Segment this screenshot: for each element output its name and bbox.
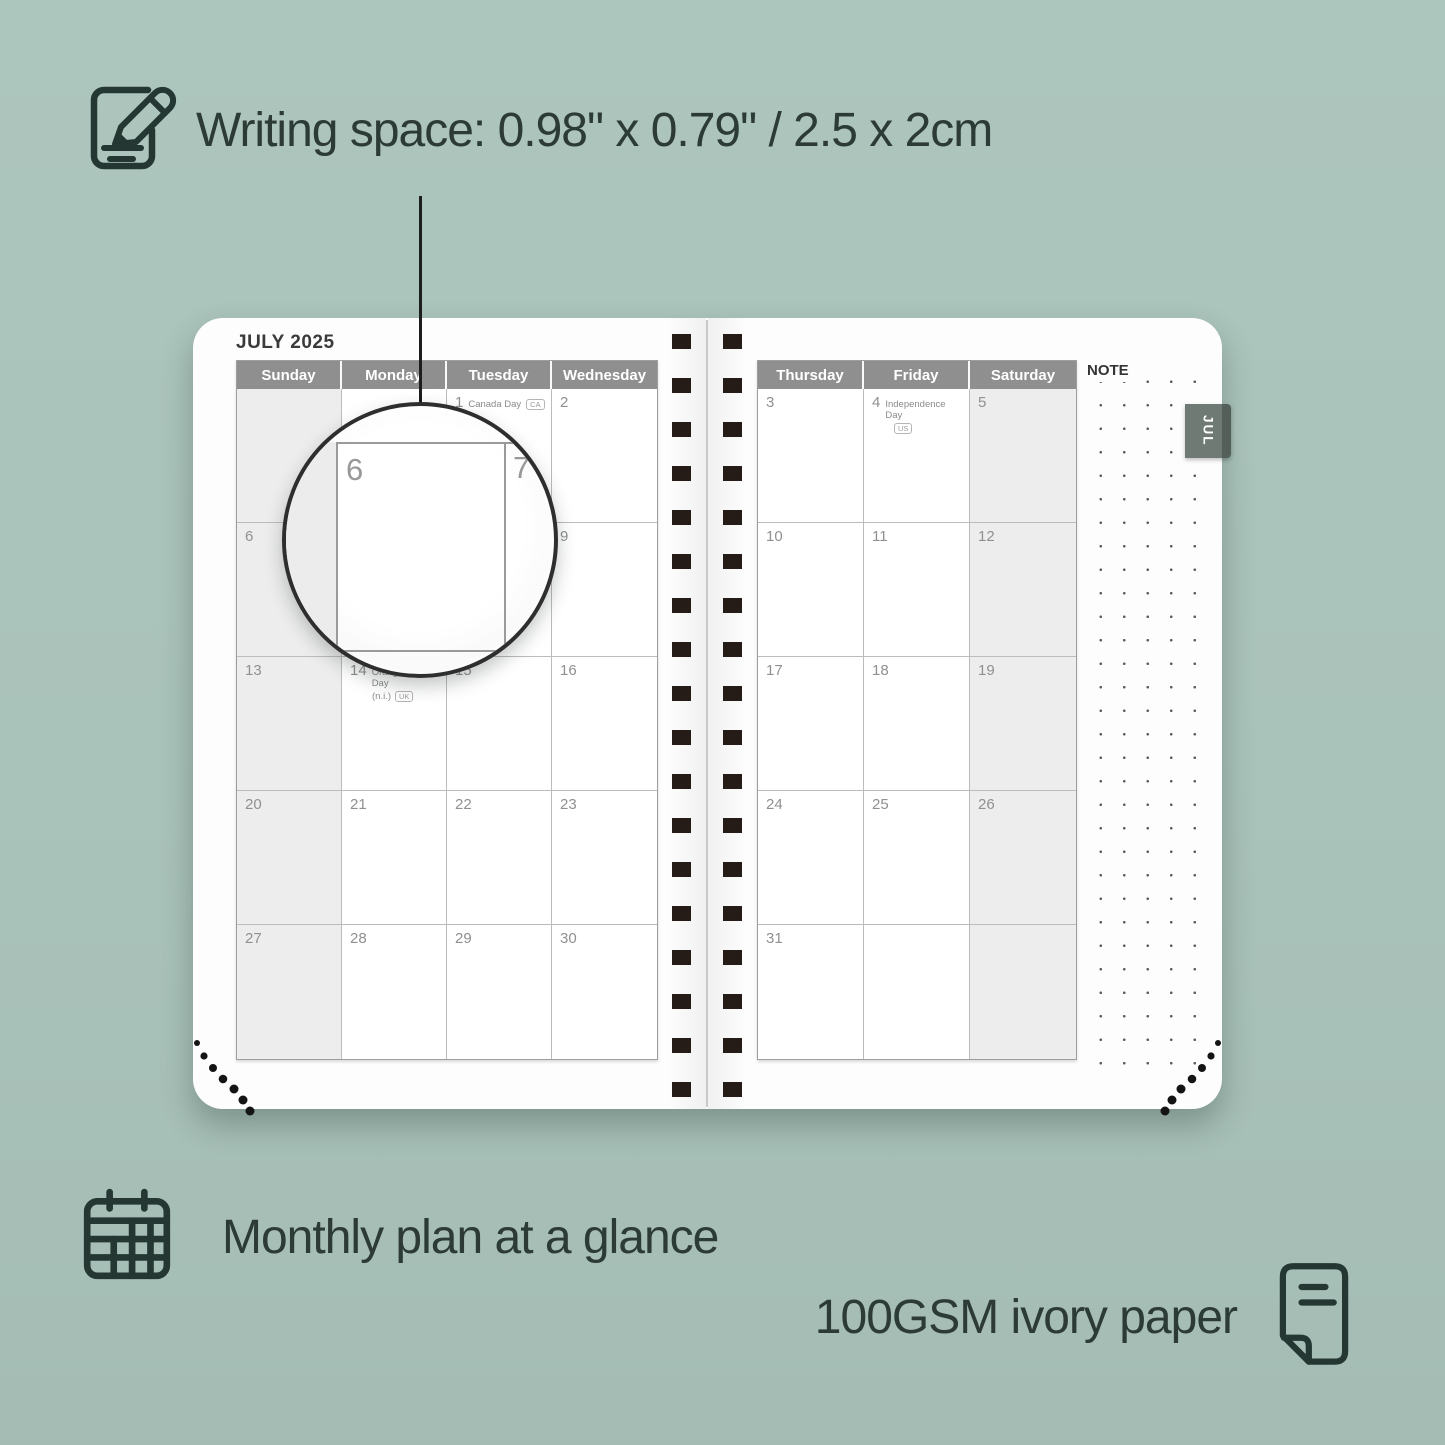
cell-line: 24 [758,791,863,812]
cell-line: 11 [864,523,969,544]
writing-space-caption: Writing space: 0.98" x 0.79" / 2.5 x 2cm [196,103,992,158]
day-number: 11 [872,529,888,544]
country-badge: CA [526,399,544,410]
cell-line: 9 [552,523,657,544]
magnified-day-7: 7 [513,450,530,486]
calendar-cell-16: 16 [552,657,657,791]
calendar-cell-29: 29 [447,925,552,1059]
day-number: 20 [245,797,262,812]
calendar-cell-27: 27 [237,925,342,1059]
calendar-cell-21: 21 [342,791,447,925]
monthly-plan-caption: Monthly plan at a glance [222,1210,718,1265]
day-number: 9 [560,529,568,544]
day-number: 31 [766,931,783,946]
calendar-right-page: ThursdayFridaySaturday34Independence Day… [757,360,1077,1060]
calendar-cell-10: 10 [758,523,864,657]
day-header-sunday: Sunday [237,361,342,389]
cell-line: 19 [970,657,1076,678]
day-number: 19 [978,663,995,678]
day-number: 5 [978,395,986,410]
day-header-wednesday: Wednesday [552,361,657,389]
day-header-thursday: Thursday [758,361,864,389]
calendar-icon [78,1186,176,1284]
calendar-cell-25: 25 [864,791,970,925]
day-number: 26 [978,797,995,812]
cell-line: 5 [970,389,1076,410]
day-header-friday: Friday [864,361,970,389]
day-number: 6 [245,529,253,544]
cell-line: 16 [552,657,657,678]
magnified-column-line [504,442,506,674]
calendar-cell-18: 18 [864,657,970,791]
calendar-cell-20: 20 [237,791,342,925]
cell-line: 26 [970,791,1076,812]
cell-line: 20 [237,791,341,812]
cell-line-2: US [894,423,969,434]
cell-line: 3 [758,389,863,410]
day-number: 29 [455,931,472,946]
cell-line [864,925,969,931]
cell-line: 4Independence Day [864,389,969,422]
day-number: 4 [872,395,880,410]
calendar-cell-28: 28 [342,925,447,1059]
day-number: 3 [766,395,774,410]
day-number: 27 [245,931,262,946]
cell-line: 23 [552,791,657,812]
day-number: 2 [560,395,568,410]
cell-line: 2 [552,389,657,410]
magnified-row-line-bottom [286,650,554,652]
cell-line: 30 [552,925,657,946]
day-header-tuesday: Tuesday [447,361,552,389]
calendar-cell-9: 9 [552,523,657,657]
calendar-cell-12: 12 [970,523,1076,657]
cell-line: 28 [342,925,446,946]
calendar-cell-4: 4Independence DayUS [864,389,970,523]
cell-line: 27 [237,925,341,946]
calendar-cell-15: 15 [447,657,552,791]
cell-line: 22 [447,791,551,812]
day-number: 25 [872,797,889,812]
calendar-cell-5: 5 [970,389,1076,523]
calendar-cell-3: 3 [758,389,864,523]
holiday-label-2: (n.i.) [372,691,391,702]
day-number: 21 [350,797,367,812]
cell-line [970,925,1076,931]
writing-pencil-icon [84,72,184,172]
day-number: 28 [350,931,367,946]
month-tab-jul: JUL [1185,404,1231,458]
calendar-cell-13: 13 [237,657,342,791]
day-number: 22 [455,797,472,812]
day-number: 17 [766,663,783,678]
spiral-binding-right [723,334,742,1098]
paper-caption: 100GSM ivory paper [815,1290,1237,1345]
month-tab-label: JUL [1201,415,1216,447]
day-number: 12 [978,529,995,544]
paper-icon [1270,1260,1358,1372]
calendar-cell-26: 26 [970,791,1076,925]
calendar-cell-empty [970,925,1076,1059]
cell-line: 21 [342,791,446,812]
cell-line: 29 [447,925,551,946]
cell-line: 18 [864,657,969,678]
calendar-cell-19: 19 [970,657,1076,791]
calendar-cell-2: 2 [552,389,657,523]
cell-line: 10 [758,523,863,544]
cell-line: 12 [970,523,1076,544]
day-number: 18 [872,663,889,678]
day-header-saturday: Saturday [970,361,1076,389]
calendar-cell-24: 24 [758,791,864,925]
cell-line: 31 [758,925,863,946]
day-number: 16 [560,663,577,678]
holiday-label: Canada Day [468,399,521,410]
day-number: 10 [766,529,783,544]
magnifier-circle: 6 7 [282,402,558,678]
cell-line: 17 [758,657,863,678]
calendar-cell-31: 31 [758,925,864,1059]
cell-line: 25 [864,791,969,812]
cell-line: 1Canada DayCA [447,389,551,410]
holiday-label: Independence Day [885,399,965,422]
day-header-monday: Monday [342,361,447,389]
magnified-weekend-band [286,442,338,674]
magnified-day-6: 6 [346,452,363,488]
cell-line-2: (n.i.)UK [372,691,446,702]
calendar-cell-empty [864,925,970,1059]
magnifier-leader-line [419,196,422,404]
day-number: 30 [560,931,577,946]
cell-line [237,389,341,395]
country-badge: UK [395,691,413,702]
day-number: 13 [245,663,262,678]
calendar-cell-17: 17 [758,657,864,791]
note-label: NOTE [1085,362,1136,382]
calendar-cell-22: 22 [447,791,552,925]
note-dot-grid: NOTE [1083,362,1201,1080]
calendar-cell-23: 23 [552,791,657,925]
calendar-cell-11: 11 [864,523,970,657]
spiral-binding-left [672,334,691,1098]
country-badge: US [894,423,912,434]
day-number: 24 [766,797,783,812]
day-number: 23 [560,797,577,812]
page-seam [706,320,708,1107]
cell-line [342,389,446,395]
calendar-cell-30: 30 [552,925,657,1059]
month-title: JULY 2025 [236,332,335,354]
